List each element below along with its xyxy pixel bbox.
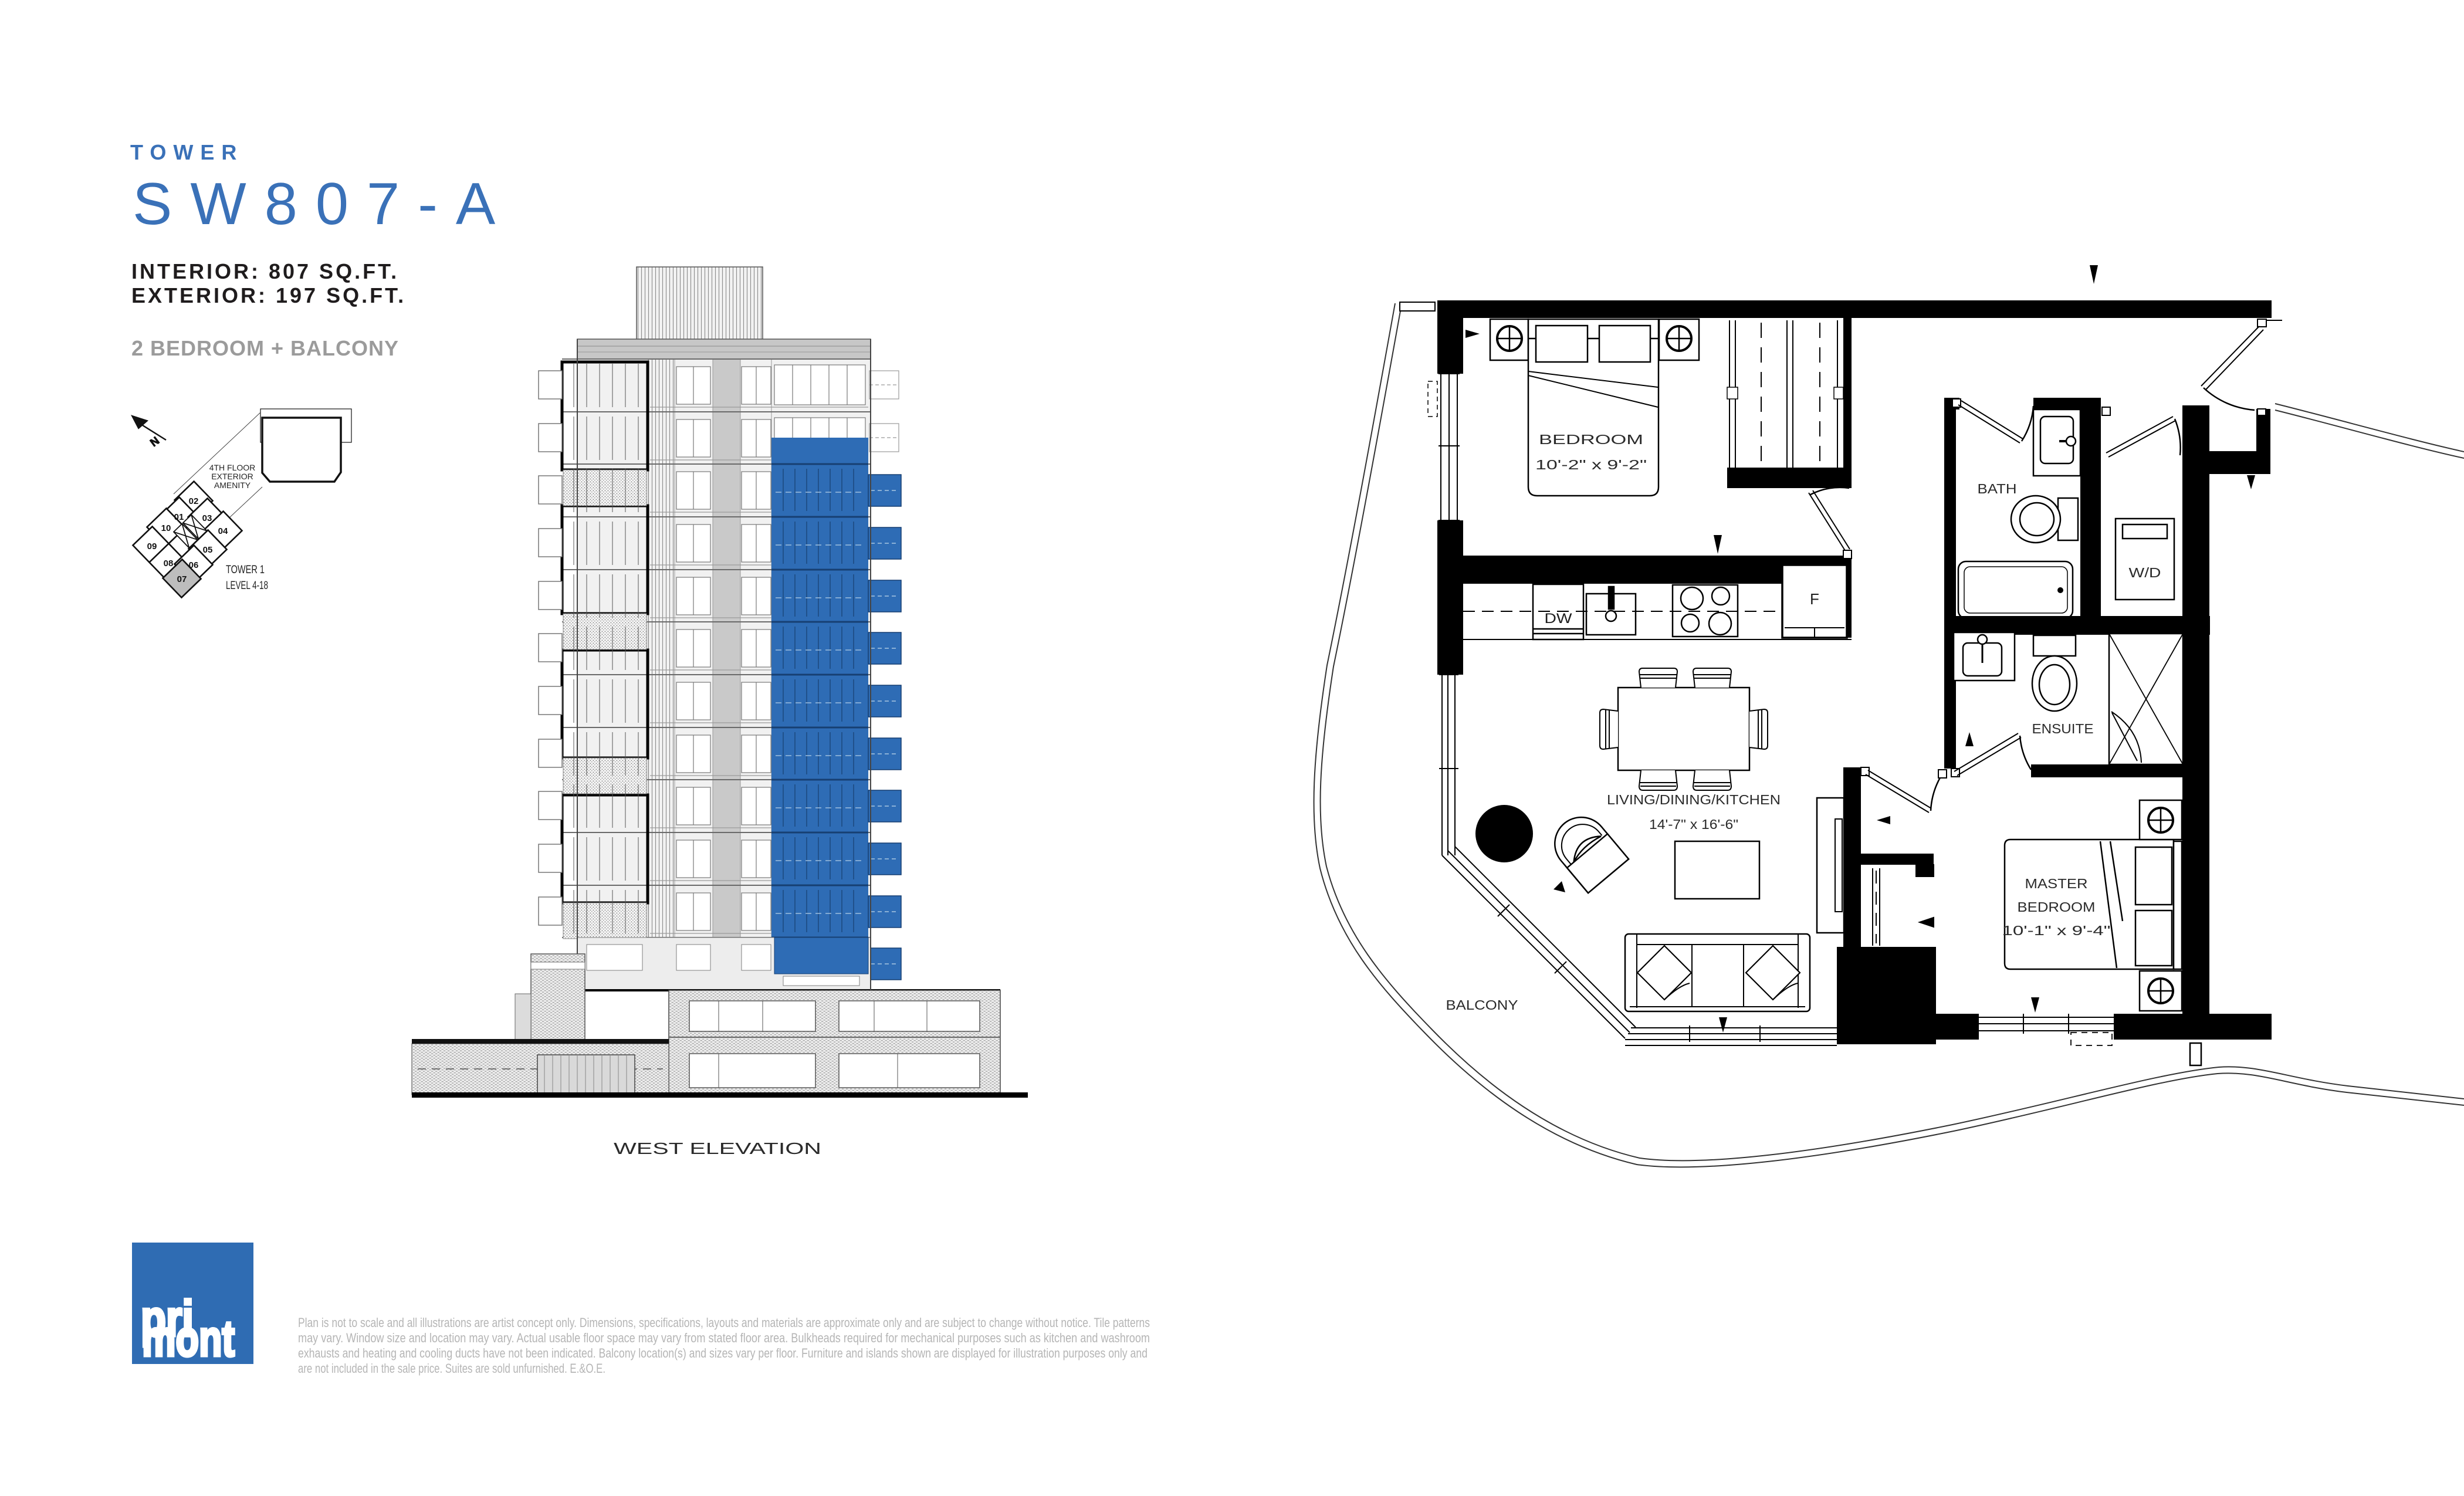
svg-text:INTERIOR: 807 SQ.FT.: INTERIOR: 807 SQ.FT. <box>131 259 399 283</box>
svg-text:10: 10 <box>161 523 171 533</box>
svg-text:06: 06 <box>189 560 199 570</box>
svg-text:EXTERIOR: EXTERIOR <box>211 472 253 481</box>
svg-text:4TH FLOOR: 4TH FLOOR <box>209 463 256 472</box>
svg-text:TOWER 1: TOWER 1 <box>226 564 265 576</box>
svg-text:TOWER: TOWER <box>130 140 243 164</box>
svg-text:01: 01 <box>174 512 184 522</box>
svg-text:may vary. Window size and loca: may vary. Window size and location may v… <box>298 1331 1150 1345</box>
svg-text:mont: mont <box>142 1311 235 1367</box>
svg-text:04: 04 <box>218 526 228 536</box>
svg-text:07: 07 <box>177 574 187 584</box>
svg-text:AMENITY: AMENITY <box>214 480 251 490</box>
svg-text:10'-1" x 9'-4": 10'-1" x 9'-4" <box>2002 923 2111 938</box>
svg-text:W/D: W/D <box>2129 565 2161 580</box>
svg-text:BATH: BATH <box>1978 481 2017 496</box>
svg-text:10'-2" x 9'-2": 10'-2" x 9'-2" <box>1535 457 1647 472</box>
svg-text:exhausts and heating and cooli: exhausts and heating and cooling ducts h… <box>298 1346 1148 1360</box>
svg-text:BEDROOM: BEDROOM <box>1539 432 1643 447</box>
svg-text:2 BEDROOM + BALCONY: 2 BEDROOM + BALCONY <box>131 336 399 360</box>
svg-text:EXTERIOR: 197 SQ.FT.: EXTERIOR: 197 SQ.FT. <box>131 283 406 307</box>
svg-text:F: F <box>1810 590 1819 608</box>
svg-text:SW807-A: SW807-A <box>133 171 513 237</box>
svg-text:02: 02 <box>189 496 199 506</box>
svg-text:09: 09 <box>147 541 157 551</box>
svg-text:03: 03 <box>202 513 212 523</box>
svg-text:WEST ELEVATION: WEST ELEVATION <box>614 1139 821 1157</box>
svg-text:ENSUITE: ENSUITE <box>2032 721 2094 736</box>
svg-text:14'-7" x 16'-6": 14'-7" x 16'-6" <box>1649 817 1738 832</box>
svg-text:LIVING/DINING/KITCHEN: LIVING/DINING/KITCHEN <box>1607 792 1781 807</box>
svg-text:MASTER: MASTER <box>2025 876 2088 891</box>
svg-text:DW: DW <box>1545 611 1572 627</box>
svg-text:08: 08 <box>164 559 174 568</box>
svg-text:LEVEL 4-18: LEVEL 4-18 <box>226 580 268 592</box>
svg-text:Plan is not to scale and all i: Plan is not to scale and all illustratio… <box>298 1315 1150 1330</box>
svg-text:BALCONY: BALCONY <box>1446 997 1518 1013</box>
svg-text:BEDROOM: BEDROOM <box>2018 899 2096 915</box>
svg-text:are not included in the sale p: are not included in the sale price. Suit… <box>298 1361 605 1376</box>
svg-text:05: 05 <box>203 545 213 555</box>
